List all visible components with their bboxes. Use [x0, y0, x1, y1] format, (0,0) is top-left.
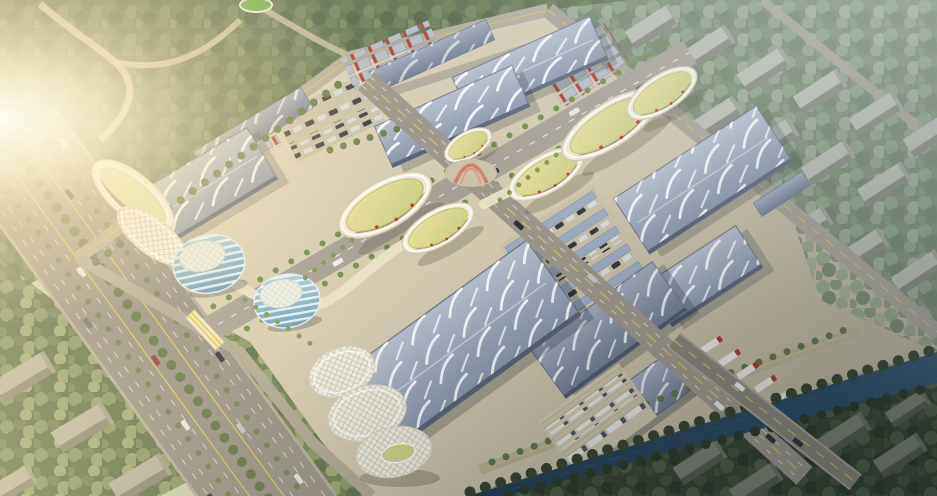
- scene-svg: [0, 0, 937, 496]
- sun-flare: [0, 0, 937, 496]
- atmosphere: [0, 0, 937, 496]
- aerial-render: [0, 0, 937, 496]
